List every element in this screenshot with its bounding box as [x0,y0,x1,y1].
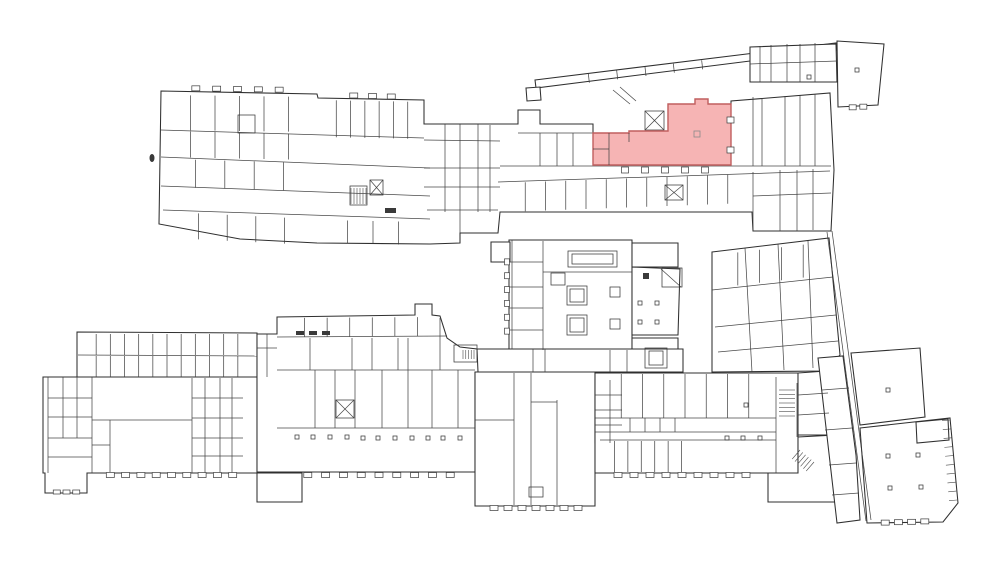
window-tick [849,105,856,110]
wall-segment [620,87,636,101]
solid-mark [385,208,396,213]
window-tick [213,86,221,91]
building-outlines [43,41,958,523]
window-tick [304,473,312,478]
window-tick [710,473,718,478]
window-tick [73,490,80,494]
building-central-block [257,304,478,472]
plan-blob-mark [150,154,155,162]
window-tick [339,473,347,478]
window-tick [532,506,540,511]
window-tick [505,273,510,279]
window-tick [881,520,889,525]
building-northeast-block [837,41,884,107]
floor-plan-page [0,0,1000,569]
window-tick [574,506,582,511]
floor-plan-canvas [0,0,1000,569]
window-tick [860,104,867,109]
window-tick [446,473,454,478]
selection-overlay [593,99,734,165]
window-tick [702,167,709,173]
building-southwest-block [43,377,257,493]
window-tick [254,87,262,92]
window-tick [234,87,242,92]
window-tick [183,473,191,478]
window-tick [152,473,160,478]
window-tick [505,287,510,293]
window-tick [428,473,436,478]
highlighted-room-notch [727,147,734,153]
window-tick [694,473,702,478]
building-southeast-band [595,373,798,473]
window-tick [106,473,114,478]
window-tick [505,259,510,265]
highlighted-room[interactable] [593,99,731,165]
building-sliver-tip [526,87,541,101]
window-tick [490,506,498,511]
building-court-attach-north [632,243,678,267]
solid-mark [322,331,330,335]
window-tick [168,473,176,478]
building-south-low-block-west [257,473,302,502]
window-tick [646,473,654,478]
building-central-tall-block [475,372,595,506]
solid-mark [309,331,317,335]
window-tick [275,87,283,92]
wall-segment [613,90,630,104]
window-tick [192,86,200,91]
window-tick [63,490,70,494]
highlighted-room-notch [727,117,734,123]
window-tick [504,506,512,511]
window-tick [726,473,734,478]
window-tick [614,473,622,478]
window-tick [560,506,568,511]
window-tick [662,473,670,478]
window-tick [518,506,526,511]
window-tick [622,167,629,173]
window-tick [393,473,401,478]
window-tick [642,167,649,173]
window-tick [369,94,377,99]
building-east-block-notch [916,419,949,443]
window-tick [921,519,929,524]
window-tick [678,473,686,478]
window-tick [411,473,419,478]
window-tick [137,473,145,478]
solid-mark [643,273,649,279]
window-tick [387,94,395,99]
window-tick [322,473,330,478]
window-tick [357,473,365,478]
building-mid-east-cluster [712,238,840,372]
solid-mark [296,331,304,335]
window-tick [213,473,221,478]
building-east-block-upper [851,348,925,425]
window-tick [505,314,510,320]
window-tick [350,93,358,98]
building-north-wing [159,91,834,244]
window-tick [682,167,689,173]
window-tick [894,520,902,525]
building-courtyard-hall [509,240,632,350]
window-tick [53,490,60,494]
window-tick [505,300,510,306]
window-tick [198,473,206,478]
window-tick [630,473,638,478]
window-tick [742,473,750,478]
window-tick [122,473,130,478]
window-tick [229,473,237,478]
building-mid-corridor [477,349,683,372]
window-tick [546,506,554,511]
window-tick [505,328,510,334]
window-tick [908,519,916,524]
window-tick [662,167,669,173]
window-tick [375,473,383,478]
building-northeast-rooms [750,44,837,82]
